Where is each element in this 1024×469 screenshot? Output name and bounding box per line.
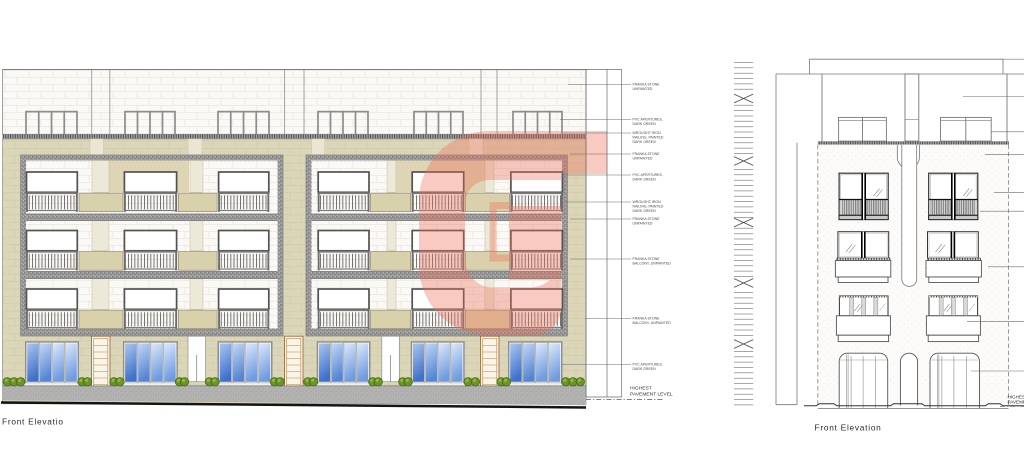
svg-text:DARK GREEN: DARK GREEN <box>633 367 657 371</box>
svg-text:UNPAINTED: UNPAINTED <box>633 222 653 226</box>
svg-text:DARK GREEN: DARK GREEN <box>633 122 657 126</box>
svg-text:DARK GREEN: DARK GREEN <box>633 209 657 213</box>
svg-text:DARK GREEN: DARK GREEN <box>633 178 657 182</box>
svg-text:BALCONY, UNPAINTED: BALCONY, UNPAINTED <box>633 262 672 266</box>
svg-text:PAVEMENT LEVEL: PAVEMENT LEVEL <box>630 391 673 397</box>
svg-text:Front Elevation: Front Elevation <box>815 423 882 433</box>
svg-text:HIGHEST: HIGHEST <box>630 385 652 391</box>
svg-text:Front Elevatio: Front Elevatio <box>2 417 64 427</box>
svg-text:PAVEMENT: PAVEMENT <box>1008 400 1024 405</box>
svg-text:HIGHEST: HIGHEST <box>1008 394 1024 399</box>
svg-text:DARK GREEN: DARK GREEN <box>633 140 657 144</box>
svg-text:UNPAINTED: UNPAINTED <box>633 87 653 91</box>
svg-text:UNPAINTED: UNPAINTED <box>633 157 653 161</box>
svg-text:BALCONY, UNPAINTED: BALCONY, UNPAINTED <box>633 321 672 325</box>
